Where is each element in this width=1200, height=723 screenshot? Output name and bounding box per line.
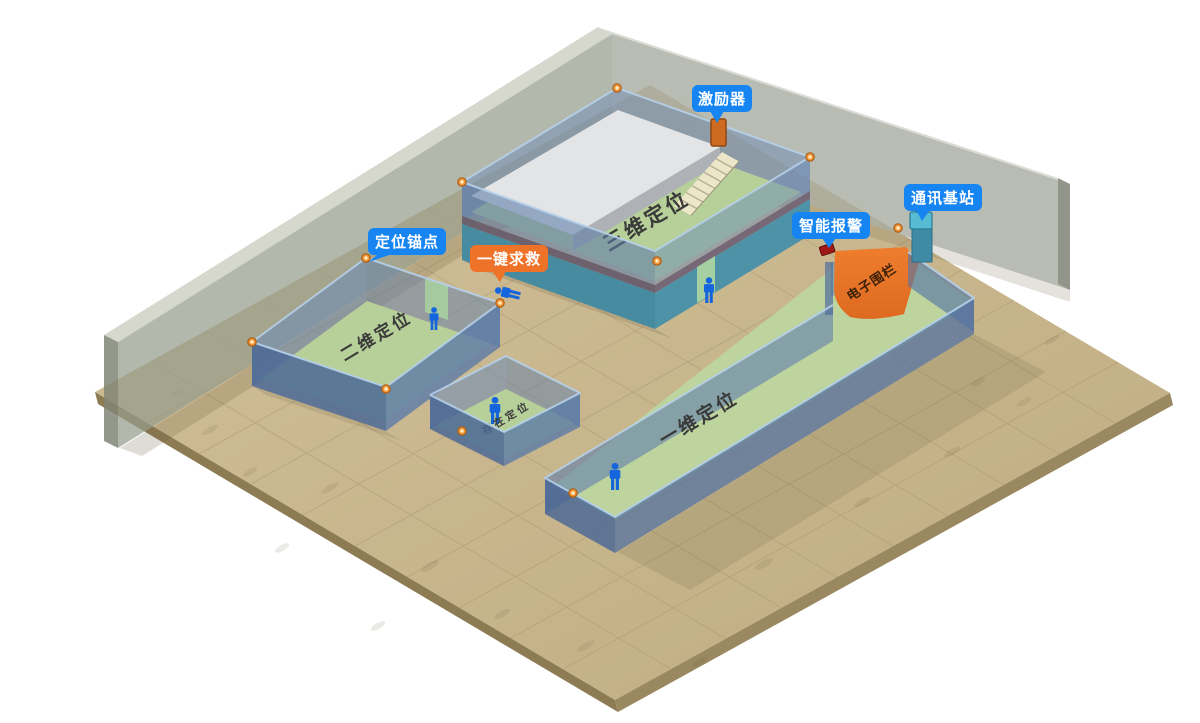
scene-stage: 二维定位 三维定位 (0, 0, 1200, 723)
bubble-smart-alarm-label: 智能报警 (799, 217, 863, 235)
bubble-positioning-anchor-label: 定位锚点 (375, 233, 439, 251)
anchor-dot (894, 224, 902, 232)
anchor-dot (382, 385, 390, 393)
bubble-one-key-sos-label: 一键求救 (477, 250, 541, 268)
anchor-dot (458, 427, 466, 435)
bubble-base-station-label: 通讯基站 (911, 189, 975, 207)
anchor-dot (362, 254, 370, 262)
anchor-dot (496, 299, 504, 307)
exciter-device (711, 119, 726, 146)
anchor-dot (806, 153, 814, 161)
anchor-dot (653, 257, 661, 265)
bubble-exciter-label: 激励器 (698, 90, 746, 108)
anchor-dot (613, 84, 621, 92)
scene-canvas: 二维定位 三维定位 (0, 0, 1200, 723)
anchor-dot (248, 338, 256, 346)
anchor-dot (458, 178, 466, 186)
anchor-dot (569, 489, 577, 497)
